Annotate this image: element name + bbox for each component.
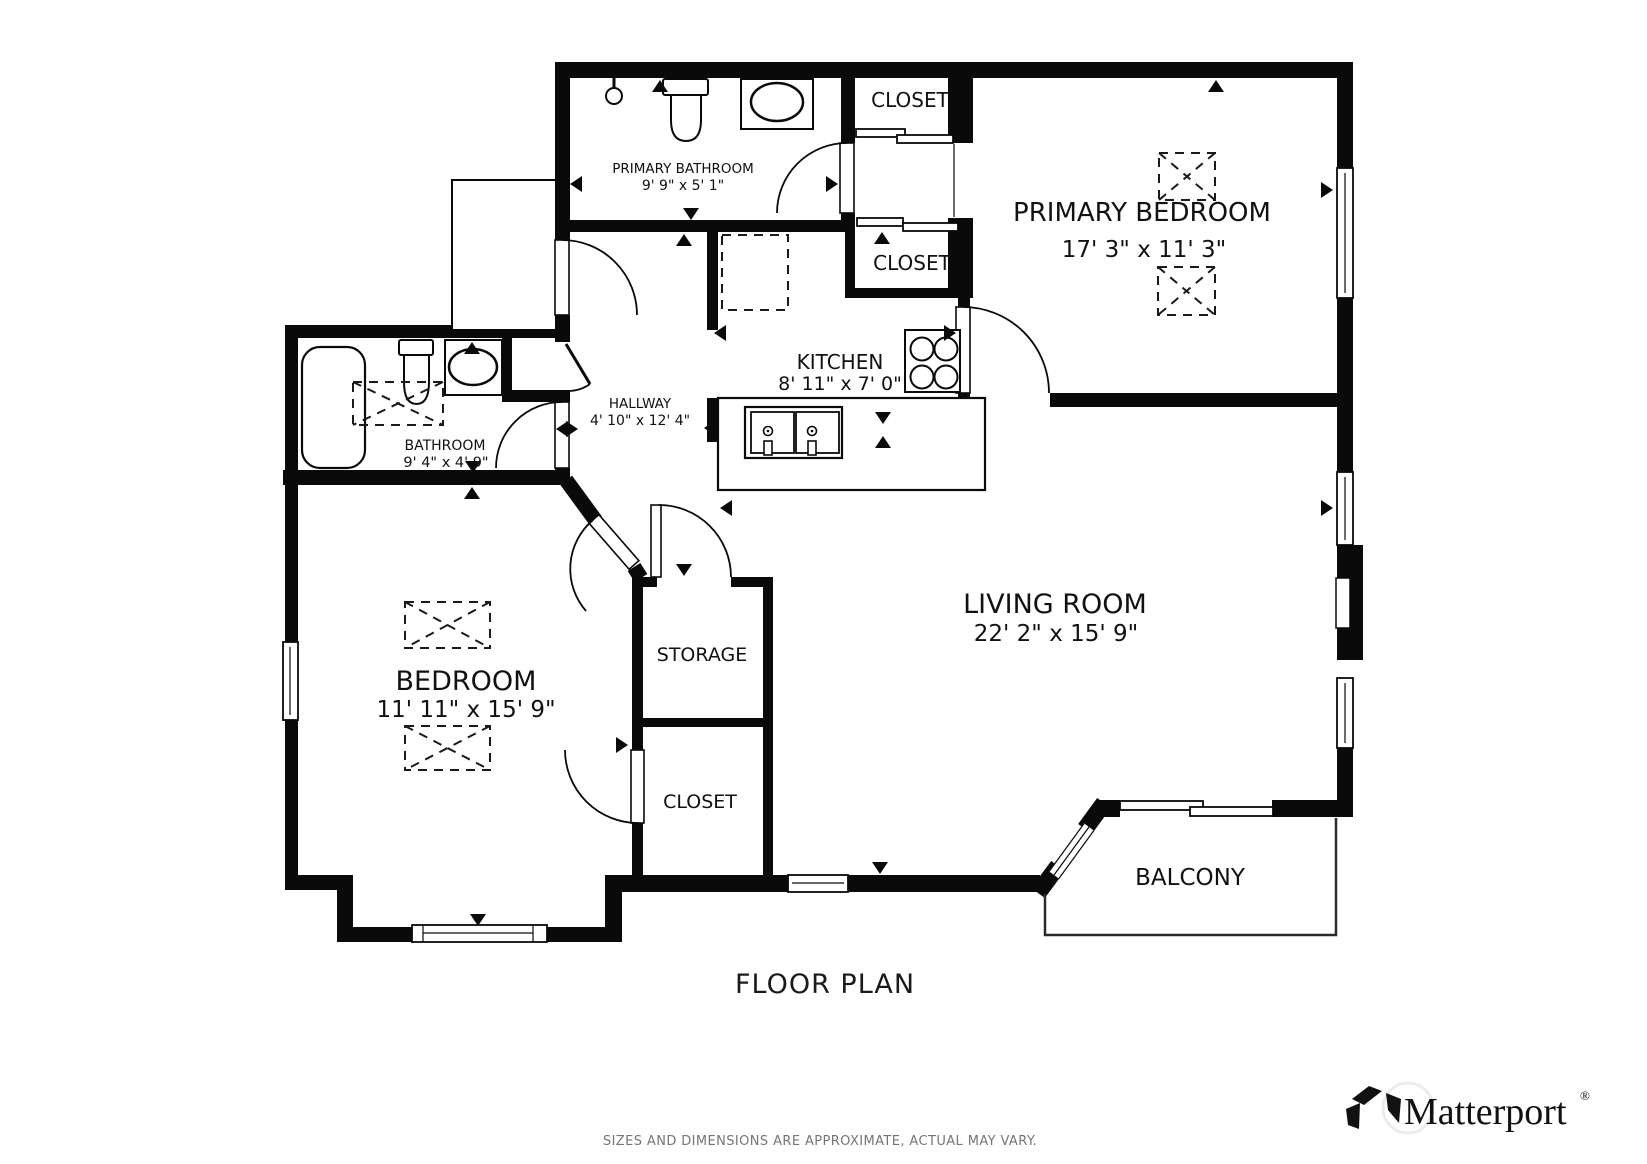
floor-plan-page: PRIMARY BATHROOM 9' 9" x 5' 1" CLOSET PR… xyxy=(0,0,1647,1164)
room-label-primary-bathroom: PRIMARY BATHROOM xyxy=(612,161,754,177)
utility-alcove xyxy=(452,180,556,330)
page-title: FLOOR PLAN xyxy=(735,969,915,1000)
disclaimer: SIZES AND DIMENSIONS ARE APPROXIMATE, AC… xyxy=(603,1134,1037,1149)
room-label-primary-bedroom: PRIMARY BEDROOM xyxy=(1013,198,1271,228)
room-label-closet-lower: CLOSET xyxy=(663,791,737,813)
room-dims-primary-bathroom: 9' 9" x 5' 1" xyxy=(642,178,724,194)
room-label-hallway: HALLWAY xyxy=(609,396,672,412)
room-dims-kitchen: 8' 11" x 7' 0" xyxy=(778,373,902,395)
room-dims-hallway: 4' 10" x 12' 4" xyxy=(590,413,690,429)
matterport-wordmark: Matterport xyxy=(1404,1091,1567,1133)
wall-niche xyxy=(1336,578,1350,628)
bay-window-icon xyxy=(1049,824,1094,879)
matterport-registered-mark: ® xyxy=(1580,1088,1590,1103)
room-label-bathroom: BATHROOM xyxy=(404,438,485,454)
room-dims-bathroom: 9' 4" x 4' 9" xyxy=(403,455,488,471)
room-label-bedroom: BEDROOM xyxy=(396,666,537,697)
room-label-closet-mid: CLOSET xyxy=(873,251,951,275)
room-dims-living-room: 22' 2" x 15' 9" xyxy=(974,621,1138,647)
room-dims-primary-bedroom: 17' 3" x 11' 3" xyxy=(1062,237,1226,263)
stove-icon xyxy=(905,330,960,392)
room-label-balcony: BALCONY xyxy=(1135,865,1246,891)
bathtub-icon xyxy=(302,347,365,468)
toilet-icon-2 xyxy=(399,340,433,404)
vanity-sink-icon xyxy=(741,79,813,129)
toilet-icon xyxy=(663,79,708,141)
room-label-closet-top: CLOSET xyxy=(871,88,949,112)
room-dims-bedroom: 11' 11" x 15' 9" xyxy=(376,697,555,723)
room-label-kitchen: KITCHEN xyxy=(797,350,884,374)
window-icon xyxy=(283,168,1353,942)
room-label-living-room: LIVING ROOM xyxy=(963,589,1147,620)
floor-plan-drawing: PRIMARY BATHROOM 9' 9" x 5' 1" CLOSET PR… xyxy=(0,0,1647,1164)
room-label-storage: STORAGE xyxy=(657,644,747,666)
double-sink-icon xyxy=(745,407,842,458)
